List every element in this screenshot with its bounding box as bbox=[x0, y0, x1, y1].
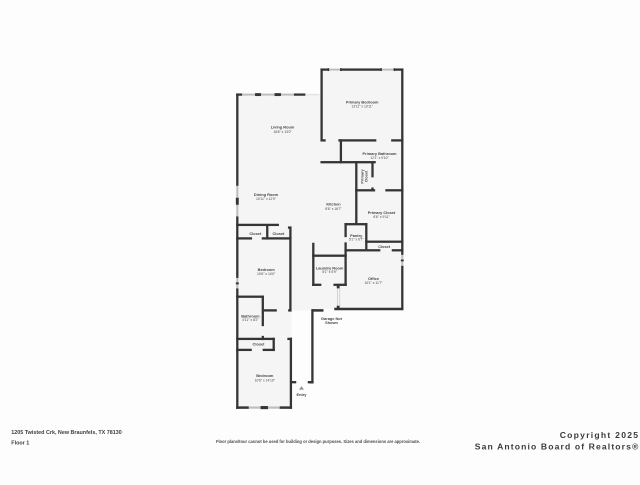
svg-text:10'1" x 11'7": 10'1" x 11'7" bbox=[364, 281, 383, 285]
svg-text:16'8" x 13'0": 16'8" x 13'0" bbox=[273, 130, 292, 134]
svg-text:Primary Bedroom: Primary Bedroom bbox=[346, 99, 379, 104]
svg-text:Closet: Closet bbox=[364, 170, 368, 182]
svg-text:13'11" x 13'11": 13'11" x 13'11" bbox=[351, 105, 373, 109]
svg-text:Floor 1: Floor 1 bbox=[11, 441, 29, 447]
svg-text:5'1" x 6'7": 5'1" x 6'7" bbox=[349, 238, 364, 242]
svg-text:Shown: Shown bbox=[325, 320, 338, 325]
svg-text:Closet: Closet bbox=[249, 231, 262, 236]
svg-text:Copyright 2025: Copyright 2025 bbox=[560, 430, 640, 440]
svg-text:San Antonio Board of Realtors®: San Antonio Board of Realtors® bbox=[475, 442, 640, 452]
svg-text:Entry: Entry bbox=[297, 392, 308, 397]
svg-text:10'11" x 12'9": 10'11" x 12'9" bbox=[256, 197, 277, 201]
svg-text:10'6" x 14'0": 10'6" x 14'0" bbox=[257, 272, 276, 276]
svg-text:Closet: Closet bbox=[378, 244, 391, 249]
svg-text:12'1" x 9'10": 12'1" x 9'10" bbox=[370, 156, 389, 160]
svg-text:1205 Twisted Crk, New Braunfel: 1205 Twisted Crk, New Braunfels, TX 7813… bbox=[11, 430, 121, 436]
svg-text:10'6" x 14'10": 10'6" x 14'10" bbox=[255, 378, 276, 382]
svg-text:8'6" x 16'7": 8'6" x 16'7" bbox=[325, 207, 342, 211]
svg-text:Closet: Closet bbox=[253, 342, 266, 347]
svg-text:4'11" x 8'2": 4'11" x 8'2" bbox=[242, 318, 259, 322]
svg-text:Closet: Closet bbox=[272, 231, 285, 236]
svg-text:Floor plans/tour cannot be use: Floor plans/tour cannot be used for buil… bbox=[216, 439, 420, 444]
svg-text:8'6" x 9'11": 8'6" x 9'11" bbox=[373, 215, 390, 219]
svg-text:5'1" x 5'9": 5'1" x 5'9" bbox=[322, 270, 337, 274]
